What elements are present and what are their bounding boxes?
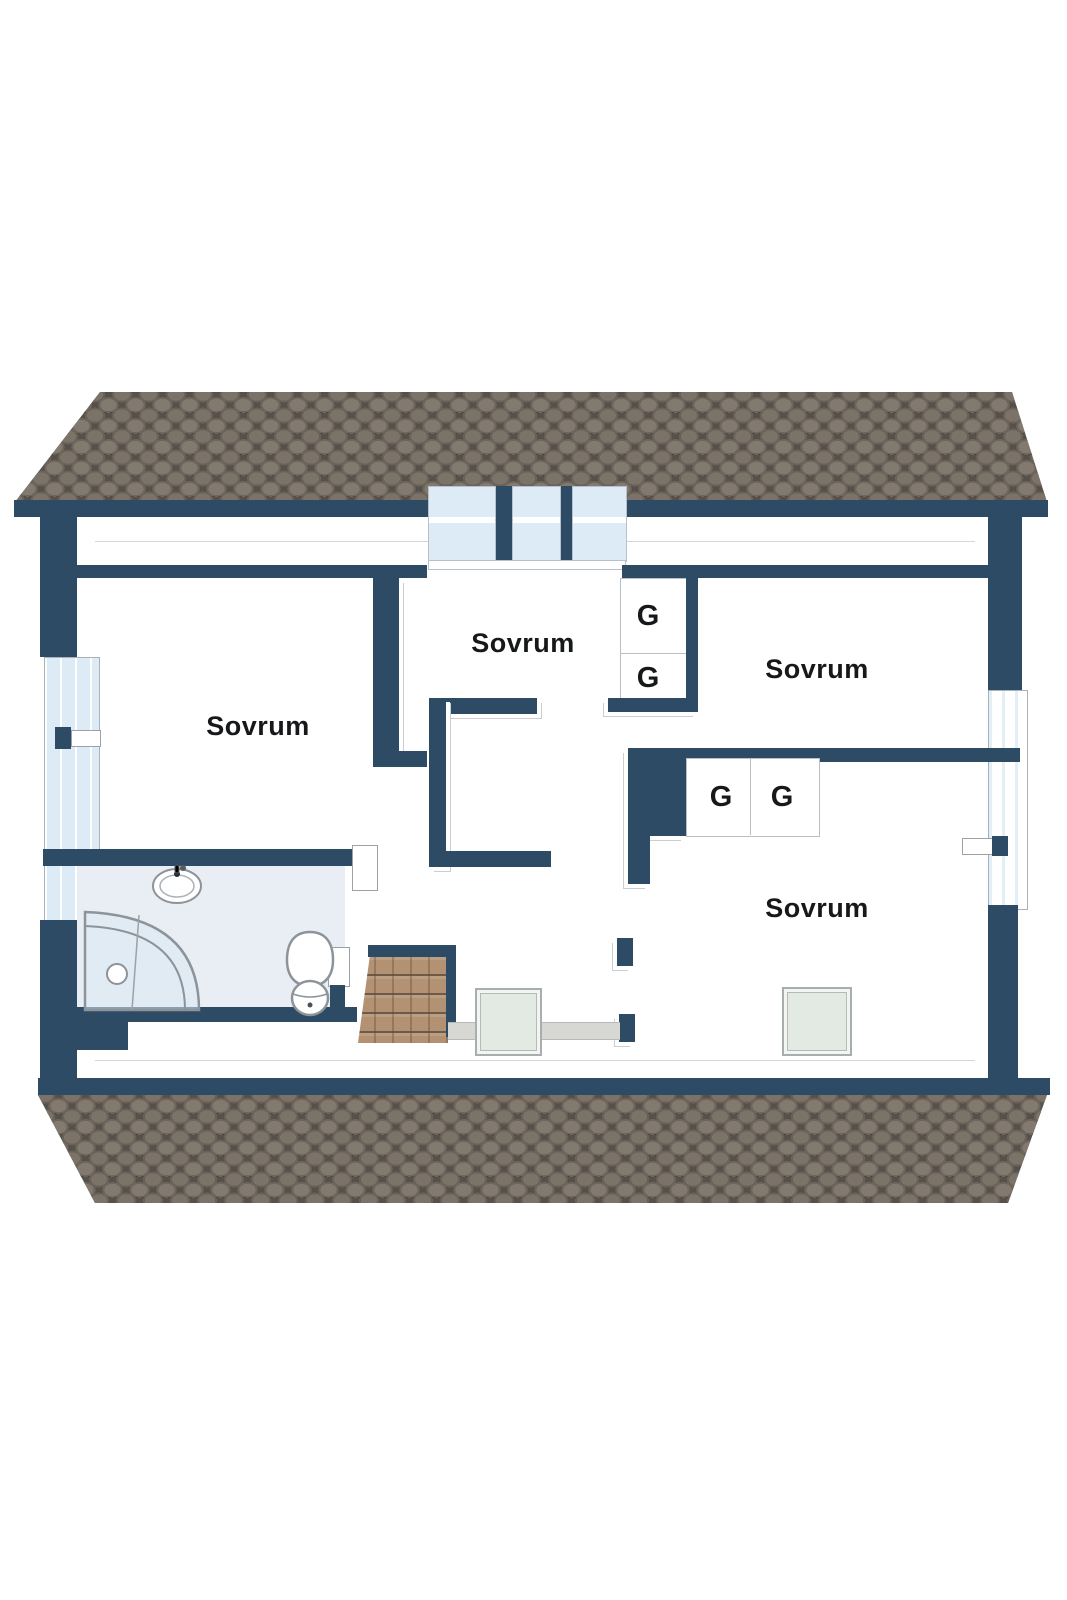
outer-wall-left-upper (40, 517, 77, 657)
roof-bottom-fascia (38, 1078, 1050, 1095)
window-right-handle (992, 836, 1008, 856)
dormer-window-group (428, 486, 625, 560)
dormer-window-pane-2 (512, 486, 561, 562)
room-label-bedroom-middle: Sovrum (433, 628, 613, 659)
roof-bottom (18, 1093, 1053, 1205)
outer-wall-left-lower (40, 920, 77, 1095)
wall-closet-c-bottom (429, 851, 551, 867)
room-label-bedroom-bottom-right: Sovrum (727, 893, 907, 924)
wall-top-left-rooms (73, 565, 427, 578)
window-left-handle (55, 727, 71, 749)
room-label-bedroom-top-right: Sovrum (727, 654, 907, 685)
stairs (358, 957, 448, 1043)
outer-wall-right-lower (988, 905, 1018, 1095)
outer-wall-right-upper (988, 517, 1022, 690)
toilet (283, 930, 337, 1018)
closet-label-pair-right: G (762, 781, 802, 814)
ceiling-fold-line-bottom (95, 1060, 975, 1061)
wall-closet-c-left (429, 698, 446, 867)
closet-stack-divider (620, 653, 686, 654)
bedroom-skylight (782, 987, 852, 1056)
wall-closet-stack-east (686, 565, 698, 710)
door-jamb-north (617, 938, 633, 966)
dormer-window-pane-1 (428, 486, 496, 562)
wall-left-bedroom-east (373, 578, 399, 753)
window-right (988, 690, 1028, 910)
floorplan-canvas: Sovrum Sovrum Sovrum Sovrum G G G G (0, 0, 1067, 1600)
stairs-top-wall (368, 945, 456, 957)
closet-label-stack-top: G (628, 600, 668, 633)
dormer-window-pane-3 (572, 486, 627, 562)
corner-shower (77, 906, 207, 1014)
window-right-handle-bar (962, 838, 994, 855)
wall-closet-stack-south (608, 698, 698, 712)
wall-bathroom-north-cap (352, 845, 378, 891)
closet-label-stack-bottom: G (628, 662, 668, 695)
wall-divider-block (628, 748, 686, 836)
closet-pair-divider (750, 758, 751, 835)
room-label-bedroom-top-left: Sovrum (168, 711, 348, 742)
door-jamb-south (619, 1014, 635, 1042)
dormer-sill (428, 560, 626, 570)
sink (150, 864, 204, 906)
wall-left-bedroom-jog (373, 751, 427, 767)
closet-label-pair-left: G (701, 781, 741, 814)
wall-top-right-rooms (622, 565, 990, 578)
wall-divider-stub (628, 836, 650, 884)
window-left-handle-bar (71, 730, 101, 747)
stair-glass-panel (475, 988, 542, 1056)
